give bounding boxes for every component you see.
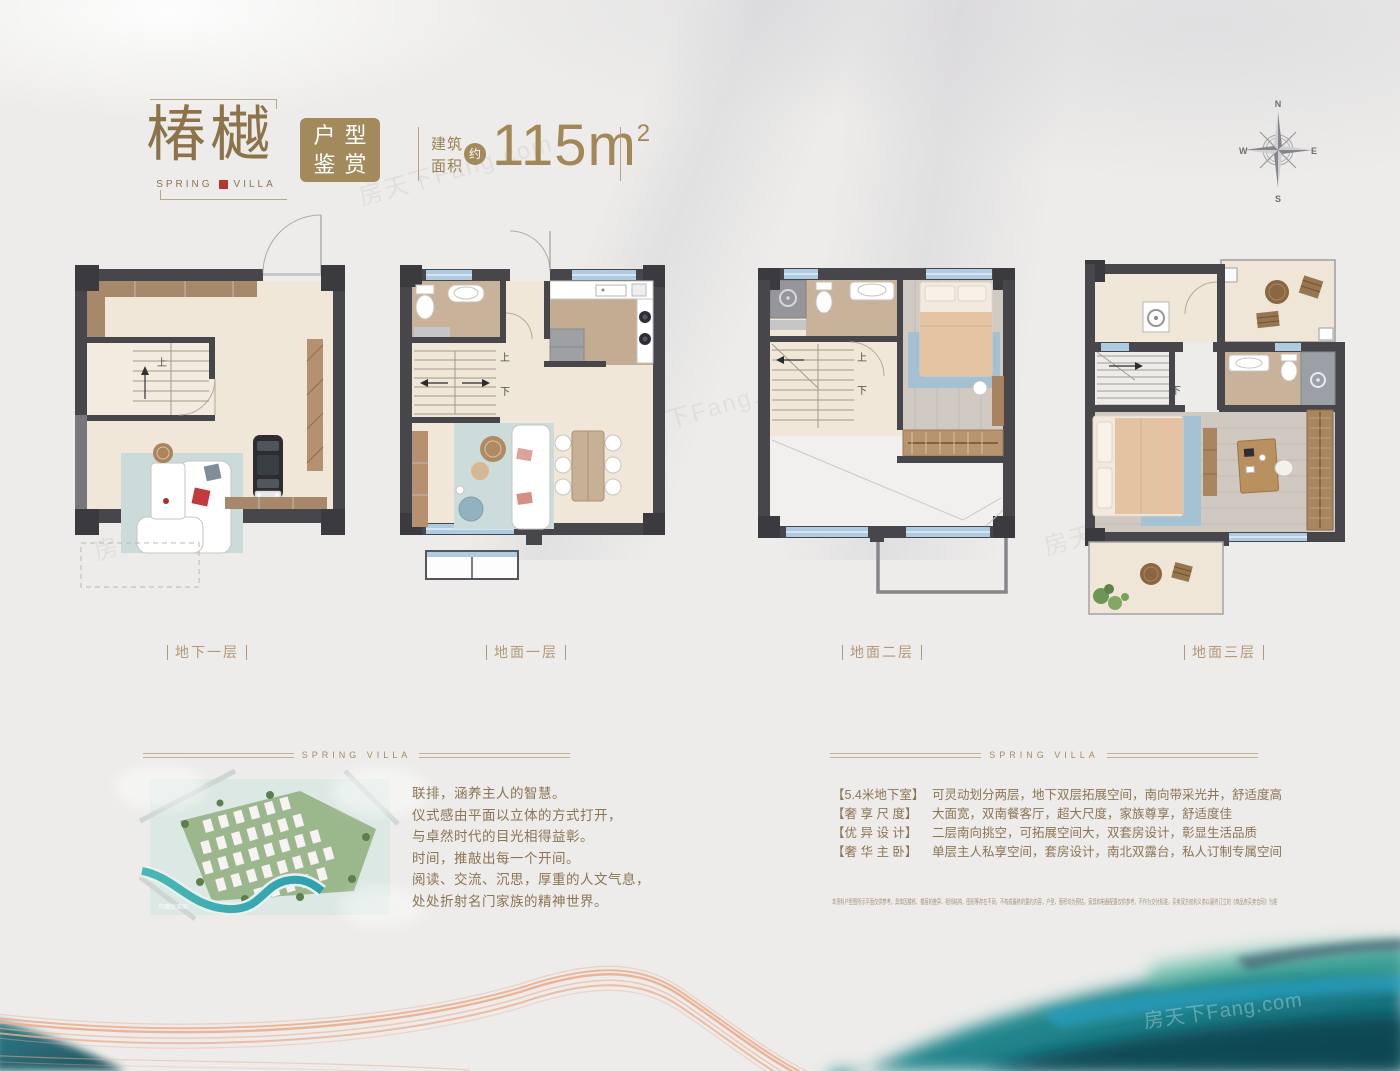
area-label-line1: 建筑 <box>431 134 463 156</box>
divider-line <box>418 127 419 181</box>
feature-row: 【5.4米地下室】 可灵动划分两层，地下双层拓展空间，南向带采光井，舒适度高 <box>832 786 1282 805</box>
feature-desc: 单层主人私享空间，套房设计，南北双露台，私人订制专属空间 <box>932 843 1282 862</box>
divider-line <box>620 127 621 181</box>
feature-tag: 【奢 享 尺 度】 <box>832 805 932 824</box>
divider-line <box>419 753 570 758</box>
image-caption: 鸟瞰效果图 <box>158 903 188 911</box>
floor-plan-level3: 下 <box>1085 252 1345 620</box>
compass-n: N <box>1275 99 1282 109</box>
area-number: 115m <box>492 113 637 178</box>
feature-desc: 可灵动划分两层，地下双层拓展空间，南向带采光井，舒适度高 <box>932 786 1282 805</box>
feature-row: 【奢 享 尺 度】 大面宽，双南餐客厅，超大尺度，家族尊享，舒适度佳 <box>832 805 1282 824</box>
intro-line: 时间，推敲出每一个开间。 <box>412 852 650 866</box>
compass-icon: N S W E <box>1238 98 1318 204</box>
seal-icon <box>219 180 228 189</box>
feature-desc: 二层南向挑空，可拓展空间大，双套房设计，彰显生活品质 <box>932 824 1257 843</box>
subtitle-left: SPRING <box>156 179 212 190</box>
feature-tag: 【奢 华 主 卧】 <box>832 843 932 862</box>
stair-up-label: 上 <box>157 357 167 369</box>
intro-line: 联排，涵养主人的智慧。 <box>412 787 650 801</box>
feature-tag: 【优 异 设 计】 <box>832 824 932 843</box>
floor-label-level2: 地面二层 <box>842 645 922 660</box>
floor-plan-basement: 上 <box>75 265 345 590</box>
divider-line <box>143 753 294 758</box>
floor-label-level3: 地面三层 <box>1184 645 1264 660</box>
approx-circle: 约 <box>464 143 486 165</box>
area-sup: 2 <box>637 120 651 147</box>
floor-plan-level1: 上 下 <box>400 265 665 590</box>
floor-plan-level2: 上 下 <box>758 268 1015 598</box>
area-label-line2: 面积 <box>431 156 463 178</box>
area-value: 115m2 <box>492 112 651 179</box>
floor-label-basement: 地下一层 <box>167 645 247 660</box>
car-icon <box>253 435 283 499</box>
badge-line1: 户型 <box>304 121 375 150</box>
divider-line <box>1107 753 1258 758</box>
compass-e: E <box>1311 146 1317 156</box>
decorative-wave: 房天下Fang.com <box>0 920 1400 1071</box>
feature-row: 【优 异 设 计】 二层南向挑空，可拓展空间大，双套房设计，彰显生活品质 <box>832 824 1282 843</box>
feature-row: 【奢 华 主 卧】 单层主人私享空间，套房设计，南北双露台，私人订制专属空间 <box>832 843 1282 862</box>
page-subtitle: SPRING VILLA <box>150 179 282 190</box>
subtitle-right: VILLA <box>234 179 276 190</box>
stair-down-label: 下 <box>857 386 867 397</box>
stair-down-label: 下 <box>500 387 510 398</box>
intro-text: 联排，涵养主人的智慧。 仪式感由平面以立体的方式打开， 与卓然时代的目光相得益彰… <box>412 787 650 916</box>
aerial-rendering-image: 鸟瞰效果图 <box>150 779 390 915</box>
divider-label: SPRING VILLA <box>302 750 412 760</box>
divider-label: SPRING VILLA <box>989 750 1099 760</box>
stair-up-label: 上 <box>500 352 510 364</box>
page-title: 椿樾 <box>146 102 296 168</box>
badge-line2: 鉴赏 <box>304 150 375 179</box>
floor-label-level1: 地面一层 <box>486 645 566 660</box>
compass-s: S <box>1275 194 1281 204</box>
feature-list: 【5.4米地下室】 可灵动划分两层，地下双层拓展空间，南向带采光井，舒适度高 【… <box>832 786 1282 862</box>
divider-line <box>830 753 981 758</box>
wave-lines <box>0 966 835 1071</box>
title-ornament-bottom <box>160 190 287 200</box>
brochure-page: 房天下Fang.com 房天下Fang.com 房天下Fang.com 房天下F… <box>0 0 1400 1071</box>
intro-line: 与卓然时代的目光相得益彰。 <box>412 830 650 844</box>
spring-villa-divider-left: SPRING VILLA <box>143 750 570 760</box>
disclaimer-text: 本资料户型图所示平面仅供参考，具体因楼栋、楼层的差异、相邻结构、图形等存在不同，… <box>832 897 1277 907</box>
feature-desc: 大面宽，双南餐客厅，超大尺度，家族尊享，舒适度佳 <box>932 805 1232 824</box>
compass-w: W <box>1239 146 1248 156</box>
feature-tag: 【5.4米地下室】 <box>832 786 932 805</box>
intro-line: 仪式感由平面以立体的方式打开， <box>412 809 650 823</box>
intro-line: 阅读、交流、沉思，厚重的人文气息， <box>412 873 650 887</box>
stair-up-label: 上 <box>857 352 867 364</box>
area-label: 建筑 面积 <box>431 134 463 178</box>
huxing-badge: 户型 鉴赏 <box>300 118 380 182</box>
spring-villa-divider-right: SPRING VILLA <box>830 750 1258 760</box>
intro-line: 处处折射名门家族的精神世界。 <box>412 895 650 909</box>
